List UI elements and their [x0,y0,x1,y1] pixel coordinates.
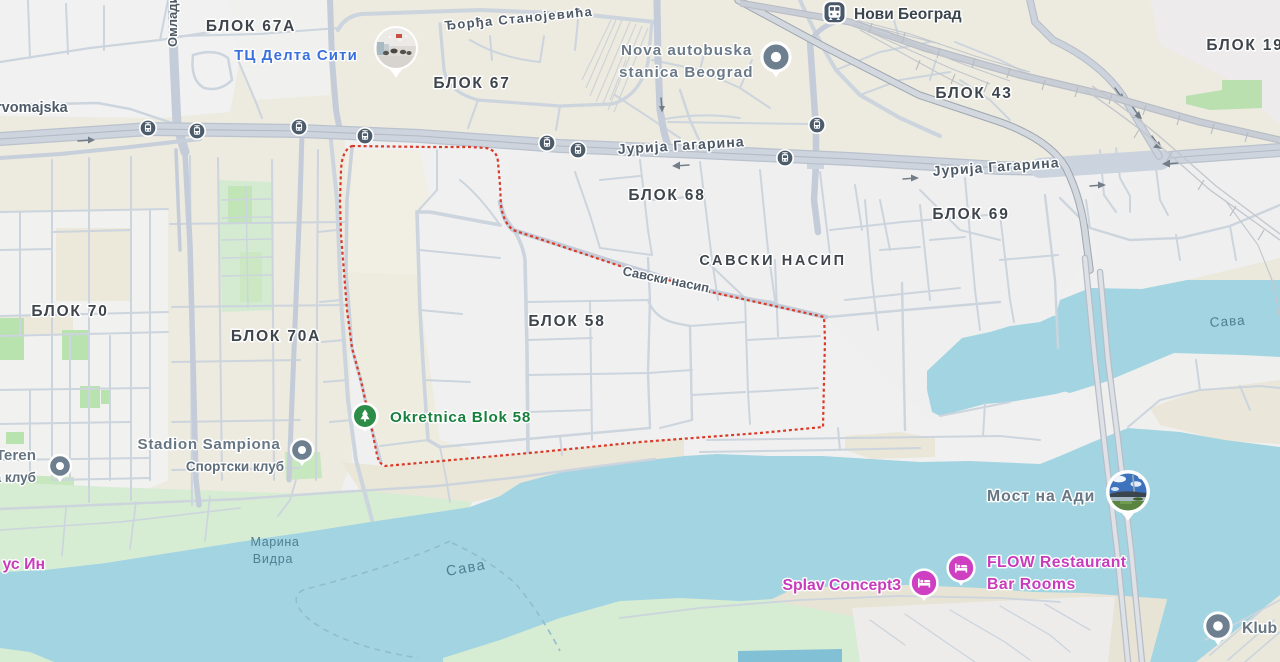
svg-text:Мост на Ади: Мост на Ади [987,488,1095,505]
svg-text:БЛОК 69: БЛОК 69 [932,206,1009,223]
svg-text:Bar Rooms: Bar Rooms [987,576,1076,593]
svg-text:БЛОК 43: БЛОК 43 [935,85,1012,102]
svg-text:Nova autobuska: Nova autobuska [621,42,752,59]
svg-text:БЛОК 19: БЛОК 19 [1206,37,1280,54]
svg-text:Stadion Sampiona: Stadion Sampiona [138,436,281,453]
svg-text:БЛОК 67А: БЛОК 67А [206,18,296,35]
svg-text:Klub: Klub [1242,620,1277,637]
svg-text:Сава: Сава [1209,313,1246,330]
svg-text:ТЦ Делта Сити: ТЦ Делта Сити [234,47,358,64]
svg-text:Марина: Марина [251,535,300,549]
svg-text:САВСКИ НАСИП: САВСКИ НАСИП [699,253,846,269]
svg-text:БЛОК 70: БЛОК 70 [31,303,108,320]
svg-text:Спортски клуб: Спортски клуб [186,459,284,474]
svg-text:а клуб: а клуб [0,470,36,485]
svg-text:FLOW Restaurant: FLOW Restaurant [987,554,1127,571]
svg-text:ус Ин: ус Ин [3,556,45,573]
svg-text:БЛОК 70А: БЛОК 70А [231,328,321,345]
svg-text:Okretnica Blok 58: Okretnica Blok 58 [390,409,531,426]
svg-text:БЛОК 67: БЛОК 67 [433,75,510,92]
svg-text:БЛОК 58: БЛОК 58 [528,313,605,330]
svg-text:rvomajska: rvomajska [0,100,69,116]
svg-text:Нови Београд: Нови Београд [854,6,962,23]
svg-text:Видра: Видра [253,552,294,566]
svg-text:Омладинских бригада: Омладинских бригада [165,0,180,47]
svg-text:БЛОК 68: БЛОК 68 [628,187,705,204]
svg-text:stanica Beograd: stanica Beograd [619,64,754,81]
svg-text:Splav Concept3: Splav Concept3 [782,577,901,594]
svg-text:Teren: Teren [0,447,36,464]
